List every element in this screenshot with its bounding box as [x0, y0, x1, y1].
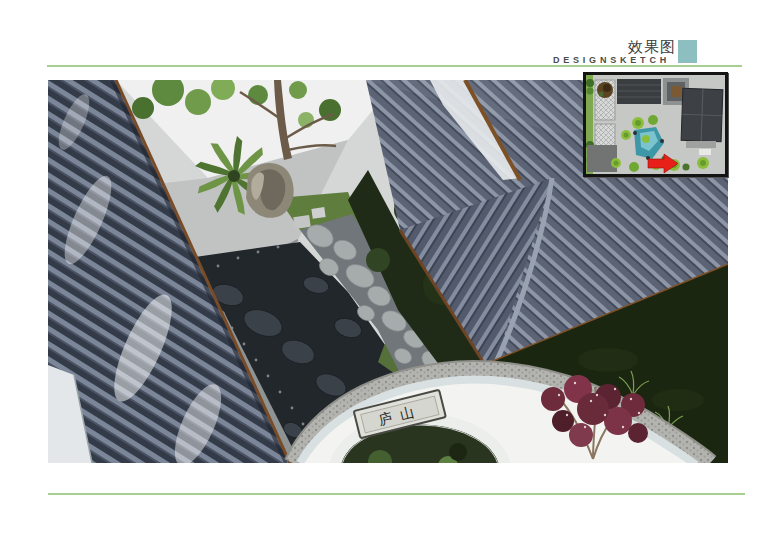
plan-brown-tree — [597, 82, 613, 98]
plan-terrace — [587, 145, 617, 172]
scholar-rock — [246, 163, 294, 218]
slide-page: 效果图 DESIGNSKETCH — [0, 0, 782, 540]
site-plan-svg — [586, 75, 725, 174]
site-plan-inset — [583, 72, 728, 177]
page-title: 效果图 — [628, 39, 676, 54]
bottom-divider — [48, 493, 745, 495]
page-subtitle: DESIGNSKETCH — [553, 56, 670, 65]
accent-square — [678, 40, 697, 63]
top-divider — [47, 65, 742, 67]
